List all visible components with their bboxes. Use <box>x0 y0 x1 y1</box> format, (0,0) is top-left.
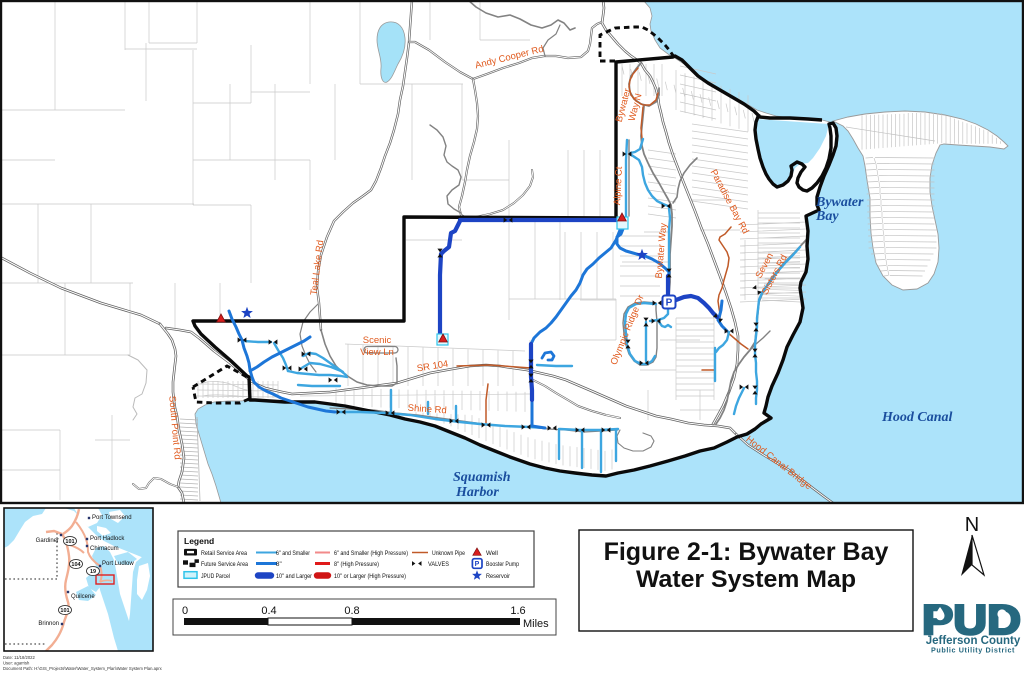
svg-text:0.8: 0.8 <box>344 605 359 617</box>
svg-text:6" and Smaller: 6" and Smaller <box>276 550 310 557</box>
svg-text:Document Path: H:\GIS_Projects: Document Path: H:\GIS_Projects\Water\Wat… <box>3 666 163 671</box>
svg-text:8": 8" <box>276 561 282 568</box>
svg-text:Alpine Ct: Alpine Ct <box>612 166 625 205</box>
svg-text:Hood Canal: Hood Canal <box>881 410 953 425</box>
svg-text:Chimacum: Chimacum <box>90 546 119 552</box>
svg-text:Port Townsend: Port Townsend <box>92 515 132 521</box>
svg-text:1.6: 1.6 <box>510 605 525 617</box>
svg-text:Reservoir: Reservoir <box>486 573 510 580</box>
svg-text:Miles: Miles <box>523 618 549 630</box>
svg-text:Well: Well <box>486 550 498 557</box>
svg-text:0.4: 0.4 <box>261 605 276 617</box>
svg-text:Quilcene: Quilcene <box>71 594 95 600</box>
svg-text:0: 0 <box>182 605 188 617</box>
svg-text:User: agarrish: User: agarrish <box>3 661 30 666</box>
svg-text:Squamish: Squamish <box>453 470 511 485</box>
svg-text:104: 104 <box>71 562 81 568</box>
svg-text:Future Service Area: Future Service Area <box>201 561 248 568</box>
svg-text:Retail Service Area: Retail Service Area <box>201 550 247 557</box>
svg-text:N: N <box>965 514 979 536</box>
svg-text:Port Hadlock: Port Hadlock <box>90 536 125 542</box>
svg-text:101: 101 <box>60 608 69 614</box>
svg-text:Booster Pump: Booster Pump <box>486 561 519 568</box>
svg-text:Bay: Bay <box>815 209 839 224</box>
svg-text:Unknown Pipe: Unknown Pipe <box>432 550 465 557</box>
svg-text:Public Utility District: Public Utility District <box>931 646 1015 655</box>
svg-text:10" or Larger (High Pressure): 10" or Larger (High Pressure) <box>334 573 406 580</box>
svg-text:Port Ludlow: Port Ludlow <box>102 561 134 567</box>
svg-text:VALVES: VALVES <box>428 561 449 568</box>
svg-text:101: 101 <box>65 539 74 545</box>
svg-text:6" and Smaller (High Pressure): 6" and Smaller (High Pressure) <box>334 550 408 557</box>
svg-text:10" and Larger: 10" and Larger <box>276 573 312 580</box>
svg-text:Scenic: Scenic <box>363 335 392 346</box>
svg-text:Brinnon: Brinnon <box>38 621 59 627</box>
svg-text:View Ln: View Ln <box>360 347 394 358</box>
svg-text:P: P <box>475 561 480 568</box>
svg-text:Gardiner: Gardiner <box>36 538 59 544</box>
svg-text:8" (High Pressure): 8" (High Pressure) <box>334 561 379 568</box>
svg-text:19: 19 <box>90 569 96 575</box>
svg-text:Water System Map: Water System Map <box>636 566 856 593</box>
svg-text:Legend: Legend <box>184 536 214 546</box>
svg-text:JPUD Parcel: JPUD Parcel <box>201 573 230 580</box>
svg-text:Date: 11/18/2022: Date: 11/18/2022 <box>3 655 35 660</box>
svg-text:Harbor: Harbor <box>455 485 499 500</box>
svg-text:P: P <box>666 298 673 309</box>
svg-text:Bywater: Bywater <box>815 195 864 210</box>
svg-text:Figure 2-1: Bywater Bay: Figure 2-1: Bywater Bay <box>604 538 889 566</box>
